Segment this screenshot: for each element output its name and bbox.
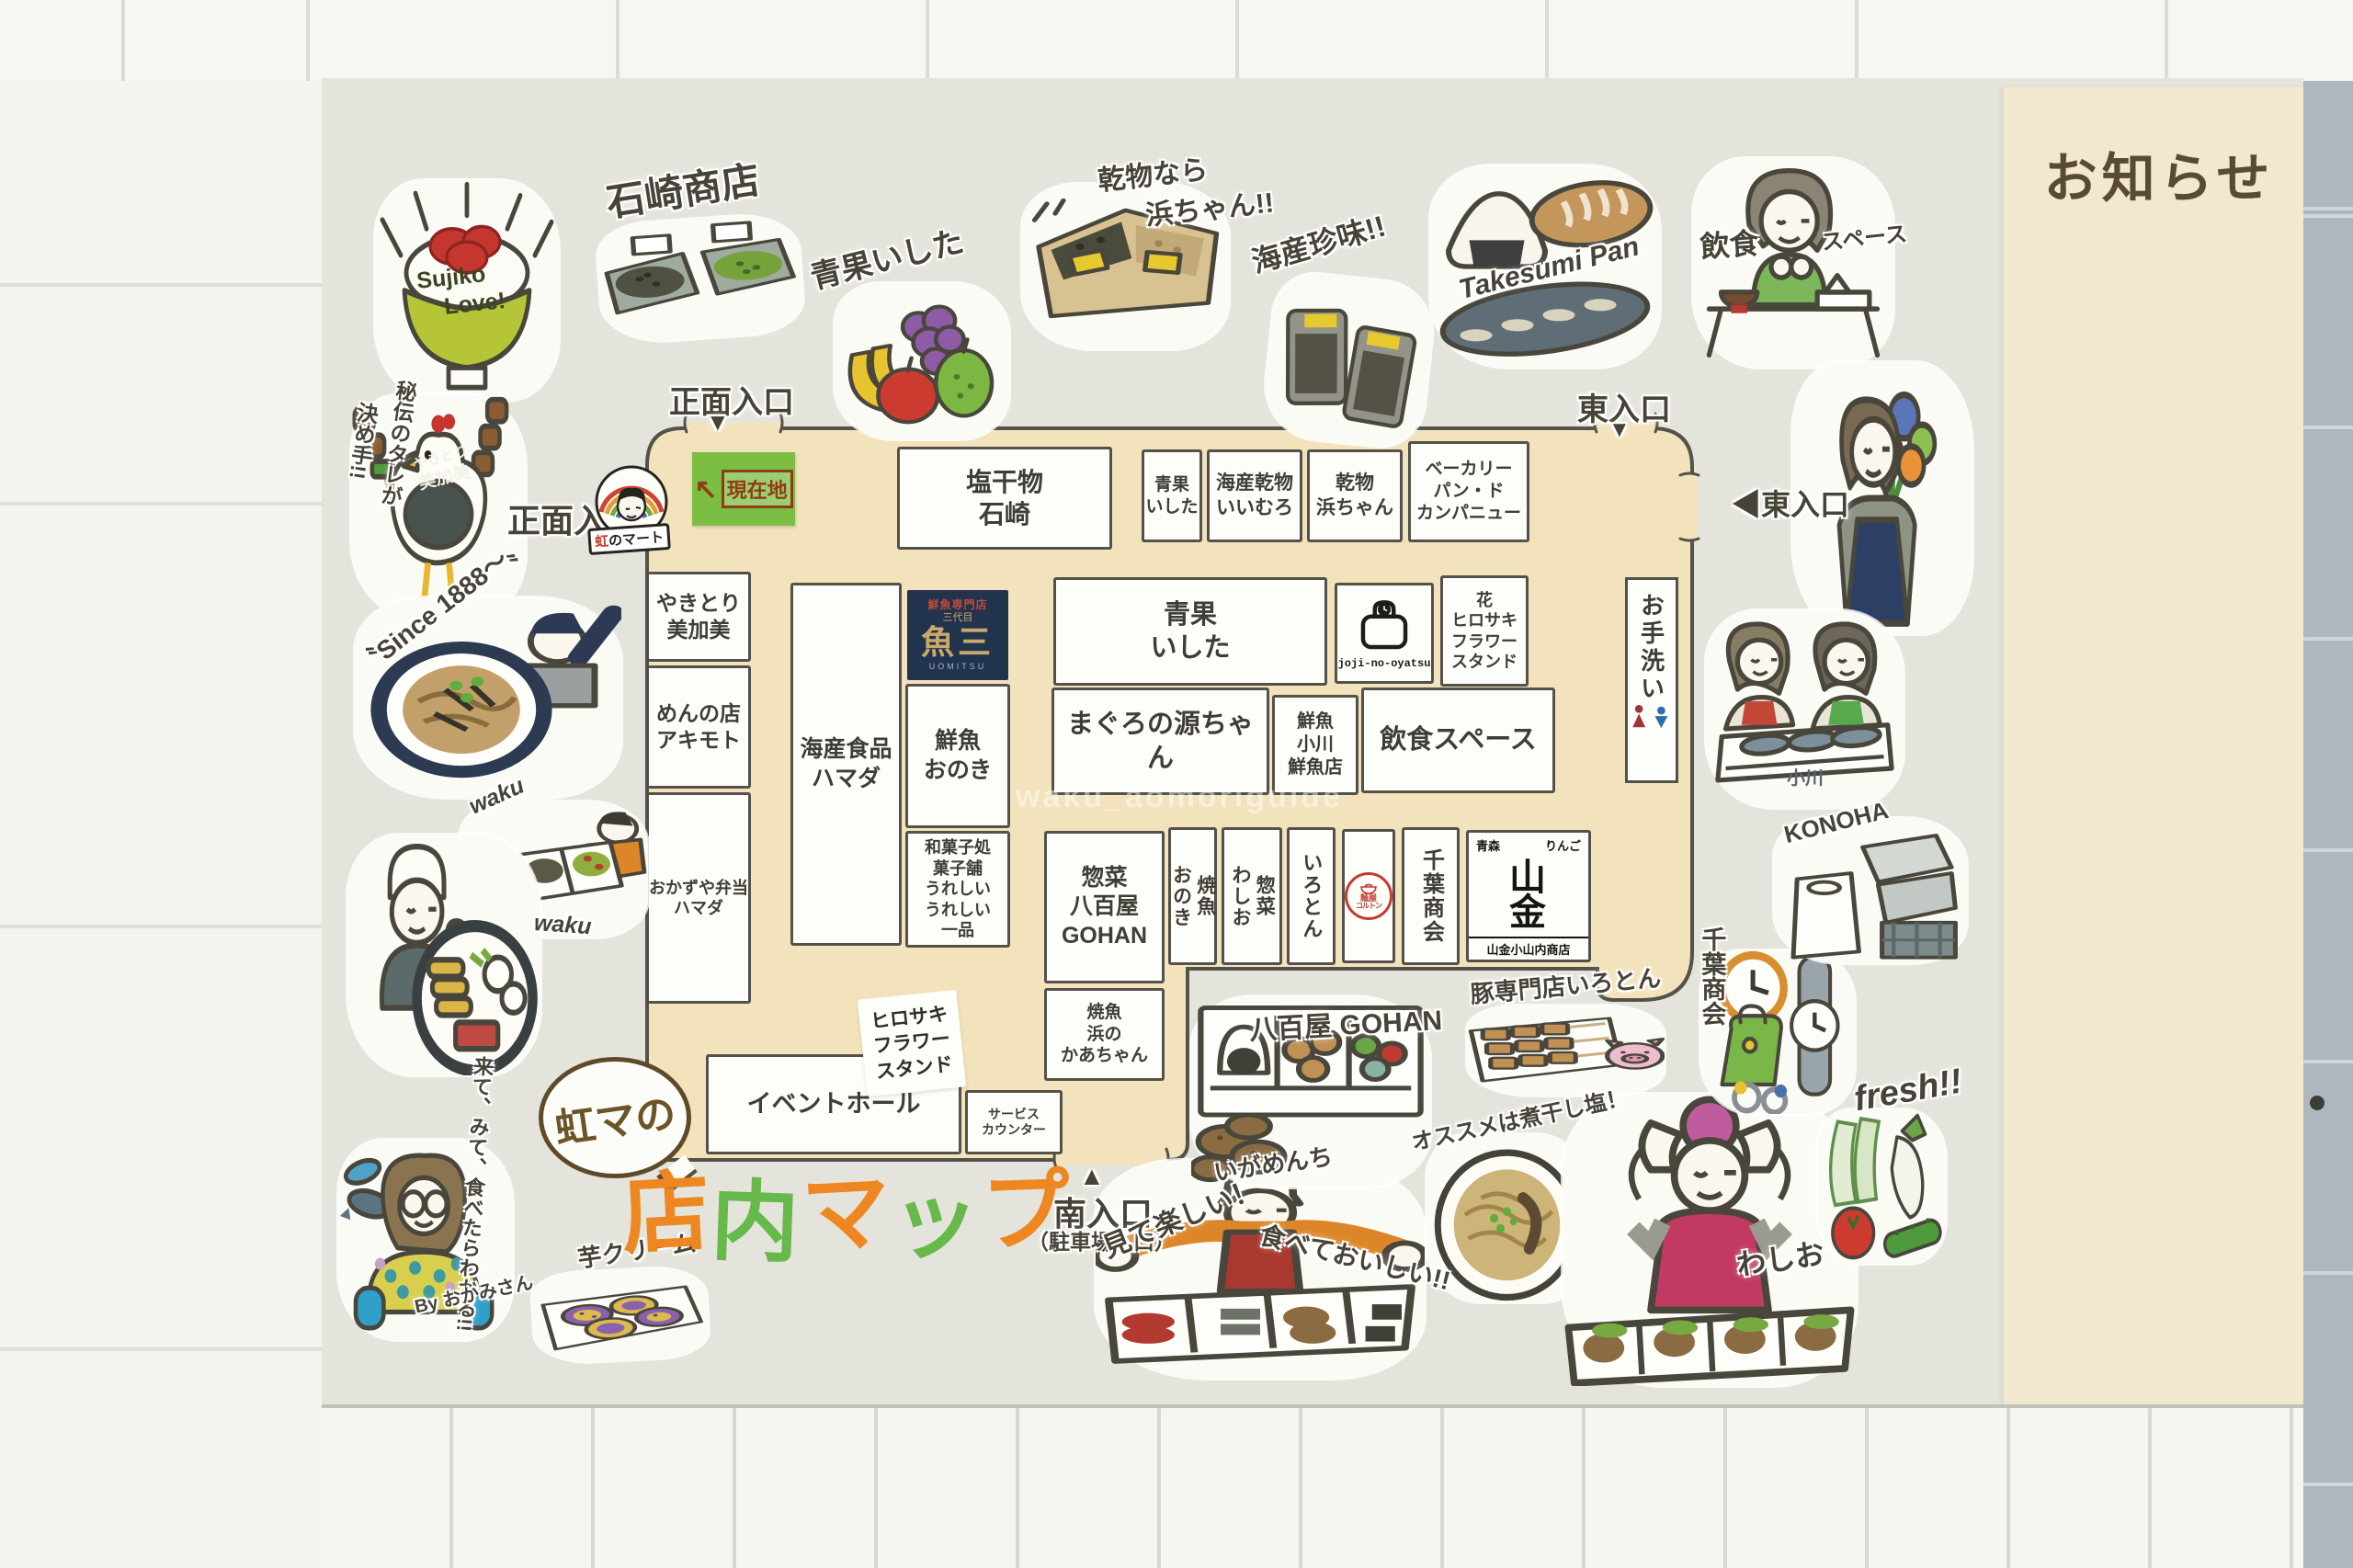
store-line: 惣菜 [1252, 875, 1276, 917]
label-chiba-shokai-doodle: 千葉商会 [1699, 926, 1724, 1026]
yamakin-mark: 山金 [1469, 854, 1588, 937]
sticker-imo-tray [531, 1266, 710, 1365]
sticker-ishita-fruits [835, 283, 1009, 439]
watermark: waku_aomoriguide [1016, 779, 1343, 815]
store-kanbutsu-hamachan: 乾物浜ちゃん [1307, 449, 1403, 542]
store-line: フラワー [1451, 631, 1518, 653]
store-line: いした [1145, 496, 1198, 518]
store-line: 浜の [1086, 1024, 1121, 1046]
store-hirosaki-flower-stand-note: ヒロサキフラワースタンド [858, 990, 966, 1097]
title-char: 内 [709, 1149, 803, 1279]
store-map-photo: お知らせ 塩干物石崎青果いした海産乾物いいむろ乾物浜ちゃんベーカリーパン・ドカン… [0, 0, 2353, 1568]
label-inshoku-doodle-1: 飲食 [1699, 221, 1760, 267]
store-wagashi-ureshii-ippin: 和菓子処菓子舗うれしいうれしい一品 [905, 831, 1010, 948]
sticker-ishizaki-trays [596, 211, 806, 345]
bag-clock-icon [1355, 597, 1414, 655]
store-line: おのき [1168, 865, 1192, 928]
store-line: 石崎 [979, 498, 1030, 530]
restroom-sign: お手洗い [1625, 577, 1678, 783]
niji-mart-name: 虹のマート [587, 523, 671, 555]
store-line: やきとり [656, 590, 741, 617]
store-line: いいむろ [1216, 496, 1293, 520]
korton-logo: 麺屋 コルトン [1345, 872, 1392, 920]
store-sengyo-onoki: 鮮魚おのき [905, 684, 1010, 828]
chinmi-packs-illustration [1260, 269, 1438, 450]
store-line: 乾物 [1336, 472, 1374, 495]
store-line: わしお [1228, 865, 1252, 928]
store-line: 飲食スペース [1380, 723, 1537, 756]
store-line: 青果 [1154, 474, 1189, 496]
store-line: 海産乾物 [1216, 472, 1293, 495]
imo-tray-illustration [531, 1266, 710, 1365]
store-line: いろとん [1299, 852, 1324, 940]
current-location-label: 現在地 [722, 470, 793, 508]
korton-line2: コルトン [1356, 903, 1381, 910]
store-line: 浜ちゃん [1316, 496, 1393, 520]
fresh-vegetables-illustration [1817, 1109, 1946, 1264]
uomitsu-sub: UOMITSU [929, 662, 987, 671]
store-line: 八百屋 [1070, 892, 1139, 921]
store-line: まぐろの源ちゃん [1054, 708, 1267, 775]
store-line: かあちゃん [1061, 1045, 1148, 1067]
store-yakizakana-hamano-kaachan: 焼魚浜のかあちゃん [1044, 988, 1165, 1081]
store-line: 塩干物 [966, 466, 1043, 498]
store-line: 千葉商会 [1417, 848, 1445, 944]
store-shiokanbutsu-ishizaki: 塩干物石崎 [897, 447, 1112, 550]
uomitsu-main: 魚三 [921, 623, 995, 661]
current-location-sign: ↖ 現在地 [692, 452, 795, 526]
title-char: 店 [618, 1140, 714, 1272]
restroom-icons [1628, 703, 1676, 731]
store-line: うれしい [925, 900, 991, 921]
restroom-label: お手洗い [1635, 593, 1669, 703]
store-line: スタンド [1451, 652, 1518, 673]
store-mennomise-akimoto: めんの店アキモト [646, 665, 751, 789]
sujiko-bowl-illustration [375, 180, 559, 401]
store-line: おのき [924, 756, 992, 785]
store-line: パン・ド [1434, 481, 1505, 503]
store-line: 海産食品 [800, 735, 892, 764]
yamakin-bottom: 山金小山内商店 [1469, 937, 1588, 960]
store-line: 和菓子処 [925, 837, 991, 858]
store-line: ヒロサキ [1451, 610, 1518, 631]
label-waku-2: waku [533, 910, 592, 940]
store-iroton: いろとん [1287, 827, 1336, 965]
ishizaki-trays-illustration [596, 211, 806, 345]
store-line: サービス [988, 1107, 1040, 1123]
store-line: うれしい [925, 879, 991, 900]
store-seika-ishita-center: 青果いした [1053, 577, 1327, 686]
store-line: 鮮魚 [1297, 710, 1334, 733]
sticker-sujiko-bowl [375, 180, 559, 401]
store-souzai-yaoya-gohan: 惣菜八百屋GOHAN [1044, 831, 1165, 983]
store-line: 焼魚 [1193, 875, 1217, 917]
store-bakery-pain-de-campagne: ベーカリーパン・ドカンパニュー [1408, 441, 1529, 542]
yamakin-sign: 青森 りんご 山金 山金小山内商店 [1466, 830, 1591, 962]
yamakin-ringo: りんご [1545, 836, 1581, 854]
title-char: ッ [888, 1147, 984, 1279]
uomitsu-sign: 鮮魚専門店 三代目 魚三 UOMITSU [907, 590, 1008, 680]
store-line: 一品 [941, 920, 974, 941]
store-yakizakana-onoki: 焼魚おのき [1168, 827, 1217, 965]
store-line: アキモト [656, 727, 741, 754]
store-line: 鮮魚店 [1288, 756, 1343, 779]
store-line: いした [1150, 631, 1230, 665]
store-line: GOHAN [1062, 922, 1147, 950]
title-char: プ [980, 1138, 1074, 1268]
store-line: おかずや弁当 [649, 878, 748, 899]
bento-man-illustration [347, 835, 540, 1075]
store-inshoku-space: 飲食スペース [1361, 687, 1555, 793]
uomitsu-top: 鮮魚専門店 [927, 599, 987, 612]
label-front-entrance-top: 正面入口 [669, 377, 794, 422]
sticker-chinmi-packs [1260, 269, 1438, 450]
sticker-iroton-pig-skewers [1467, 1006, 1665, 1096]
joji-text: joji-no-oyatsu [1338, 657, 1431, 670]
sticker-bento-man [347, 835, 540, 1075]
store-okazuya-bento-hamada: おかずや弁当ハマダ [646, 792, 751, 1004]
store-line: 鮮魚 [935, 727, 981, 756]
label-front-entrance-top-arrow: ▼ [706, 408, 730, 437]
store-line: めんの店 [656, 700, 741, 727]
label-east-entrance-right: ◀東入口 [1732, 482, 1849, 524]
store-line: 青果 [1164, 598, 1217, 631]
uomitsu-mid: 三代目 [943, 612, 973, 624]
joji-no-oyatsu-sign: joji-no-oyatsu [1335, 583, 1434, 684]
store-line: 花 [1476, 590, 1493, 611]
store-line: ハマダ [674, 898, 723, 919]
ishita-fruits-illustration [835, 283, 1009, 439]
store-line: ハマダ [812, 765, 881, 793]
store-line: ベーカリー [1425, 459, 1512, 481]
sticker-fresh-vegetables [1817, 1109, 1946, 1264]
store-line: カウンター [982, 1122, 1046, 1139]
title-char: マ [798, 1140, 894, 1272]
store-line: 惣菜 [1081, 864, 1127, 892]
menya-korton-sign: 麺屋 コルトン [1342, 829, 1395, 963]
iroton-pig-skewers-illustration [1467, 1006, 1665, 1096]
label-east-entrance-top-arrow: ▼ [1608, 417, 1631, 443]
niji-mart-badge: 虹のマート [594, 464, 669, 552]
store-line: 小川 [1297, 733, 1334, 756]
current-location-arrow: ↖ [694, 473, 717, 506]
store-line: カンパニュー [1416, 503, 1521, 525]
label-ogawa-tray: 小川 [1787, 763, 1824, 790]
store-hana-hirosaki-flower-stand: 花ヒロサキフラワースタンド [1440, 575, 1529, 687]
yamakin-aomori: 青森 [1476, 836, 1500, 854]
store-line: 焼魚 [1086, 1002, 1121, 1024]
store-chiba-shokai: 千葉商会 [1402, 827, 1460, 965]
store-souzai-washio: 惣菜わしお [1222, 827, 1282, 965]
store-line: 美加美 [667, 617, 731, 643]
store-line: 菓子舗 [933, 858, 983, 880]
page-title: 店内マップ [621, 1142, 1072, 1269]
store-seika-ishita-top: 青果いした [1142, 449, 1202, 542]
store-yakitori-mikami: やきとり美加美 [646, 572, 751, 662]
bowl-icon [1359, 883, 1378, 894]
store-kaisan-kanbutsu-iimuro: 海産乾物いいむろ [1207, 449, 1302, 542]
store-kaisan-shokuhin-hamada: 海産食品ハマダ [790, 583, 902, 946]
